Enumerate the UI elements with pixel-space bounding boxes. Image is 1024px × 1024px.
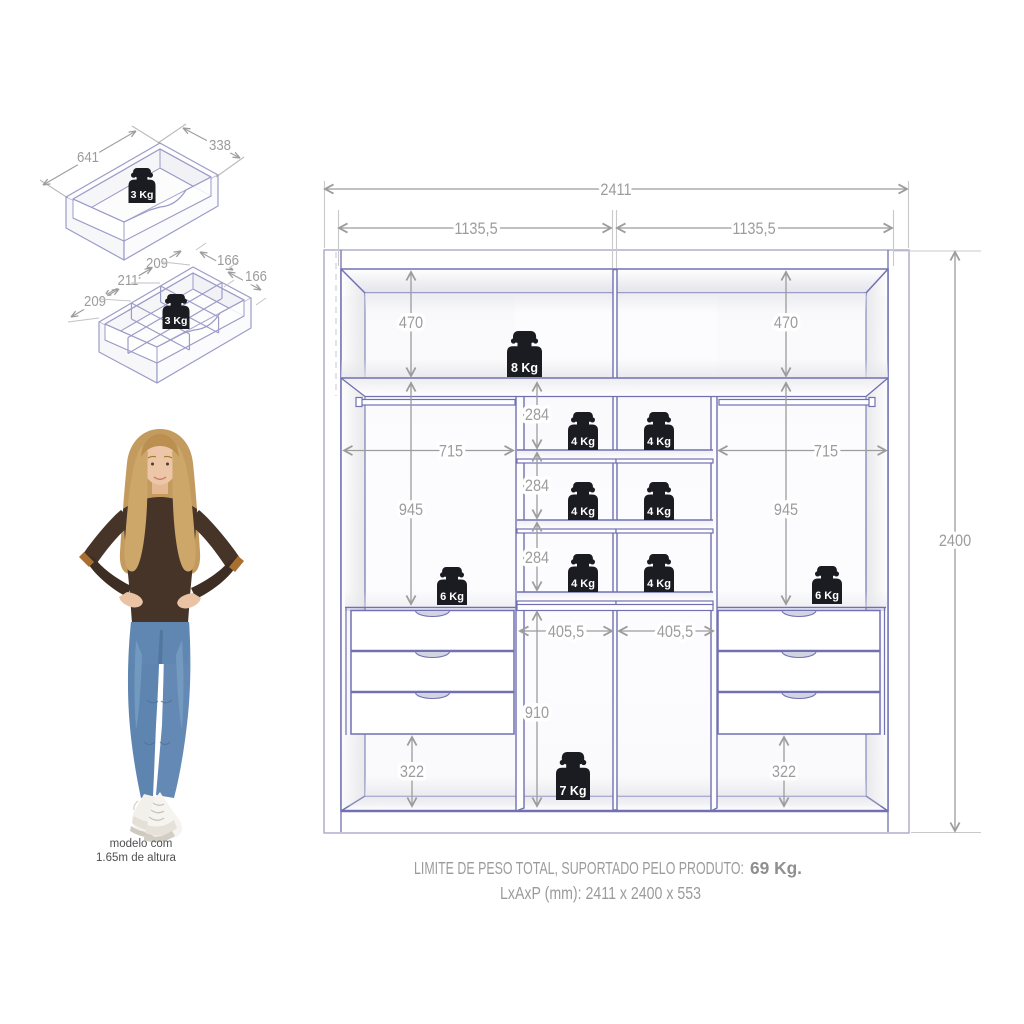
svg-text:6 Kg: 6 Kg bbox=[440, 591, 464, 603]
svg-text:405,5: 405,5 bbox=[657, 623, 693, 641]
svg-text:166: 166 bbox=[245, 267, 267, 284]
svg-text:3 Kg: 3 Kg bbox=[131, 189, 154, 201]
svg-text:4 Kg: 4 Kg bbox=[571, 578, 595, 590]
svg-text:modelo com: modelo com bbox=[110, 838, 173, 850]
svg-text:4 Kg: 4 Kg bbox=[647, 436, 671, 448]
svg-text:470: 470 bbox=[774, 314, 799, 332]
svg-text:715: 715 bbox=[439, 442, 463, 460]
svg-text:3 Kg: 3 Kg bbox=[165, 315, 188, 327]
svg-text:209: 209 bbox=[84, 292, 106, 309]
svg-text:945: 945 bbox=[399, 501, 423, 519]
svg-text:4 Kg: 4 Kg bbox=[571, 436, 595, 448]
svg-text:166: 166 bbox=[217, 251, 239, 268]
svg-text:8 Kg: 8 Kg bbox=[511, 361, 538, 375]
svg-text:322: 322 bbox=[772, 763, 796, 781]
svg-text:322: 322 bbox=[400, 763, 424, 781]
svg-text:910: 910 bbox=[525, 704, 550, 722]
svg-text:284: 284 bbox=[525, 406, 550, 424]
svg-text:1135,5: 1135,5 bbox=[454, 220, 497, 238]
svg-text:715: 715 bbox=[814, 442, 838, 460]
svg-text:338: 338 bbox=[209, 136, 231, 153]
svg-text:211: 211 bbox=[117, 271, 138, 288]
svg-text:641: 641 bbox=[77, 148, 99, 165]
svg-text:945: 945 bbox=[774, 501, 798, 519]
svg-text:284: 284 bbox=[525, 477, 550, 495]
svg-text:470: 470 bbox=[399, 314, 424, 332]
svg-text:69 Kg.: 69 Kg. bbox=[750, 858, 802, 878]
svg-text:284: 284 bbox=[525, 549, 550, 567]
svg-text:2400: 2400 bbox=[939, 532, 972, 550]
svg-text:2411: 2411 bbox=[600, 181, 631, 199]
svg-text:4 Kg: 4 Kg bbox=[647, 506, 671, 518]
svg-text:LxAxP (mm): 2411 x 2400 x 553: LxAxP (mm): 2411 x 2400 x 553 bbox=[500, 883, 701, 903]
svg-text:405,5: 405,5 bbox=[548, 623, 584, 641]
svg-text:4 Kg: 4 Kg bbox=[647, 578, 671, 590]
svg-text:4 Kg: 4 Kg bbox=[571, 506, 595, 518]
svg-text:LIMITE DE PESO TOTAL, SUPORTAD: LIMITE DE PESO TOTAL, SUPORTADO PELO PRO… bbox=[414, 858, 744, 878]
svg-text:1.65m de altura: 1.65m de altura bbox=[96, 852, 177, 864]
svg-text:7 Kg: 7 Kg bbox=[559, 784, 586, 798]
svg-text:1135,5: 1135,5 bbox=[732, 220, 775, 238]
svg-text:6 Kg: 6 Kg bbox=[815, 590, 839, 602]
